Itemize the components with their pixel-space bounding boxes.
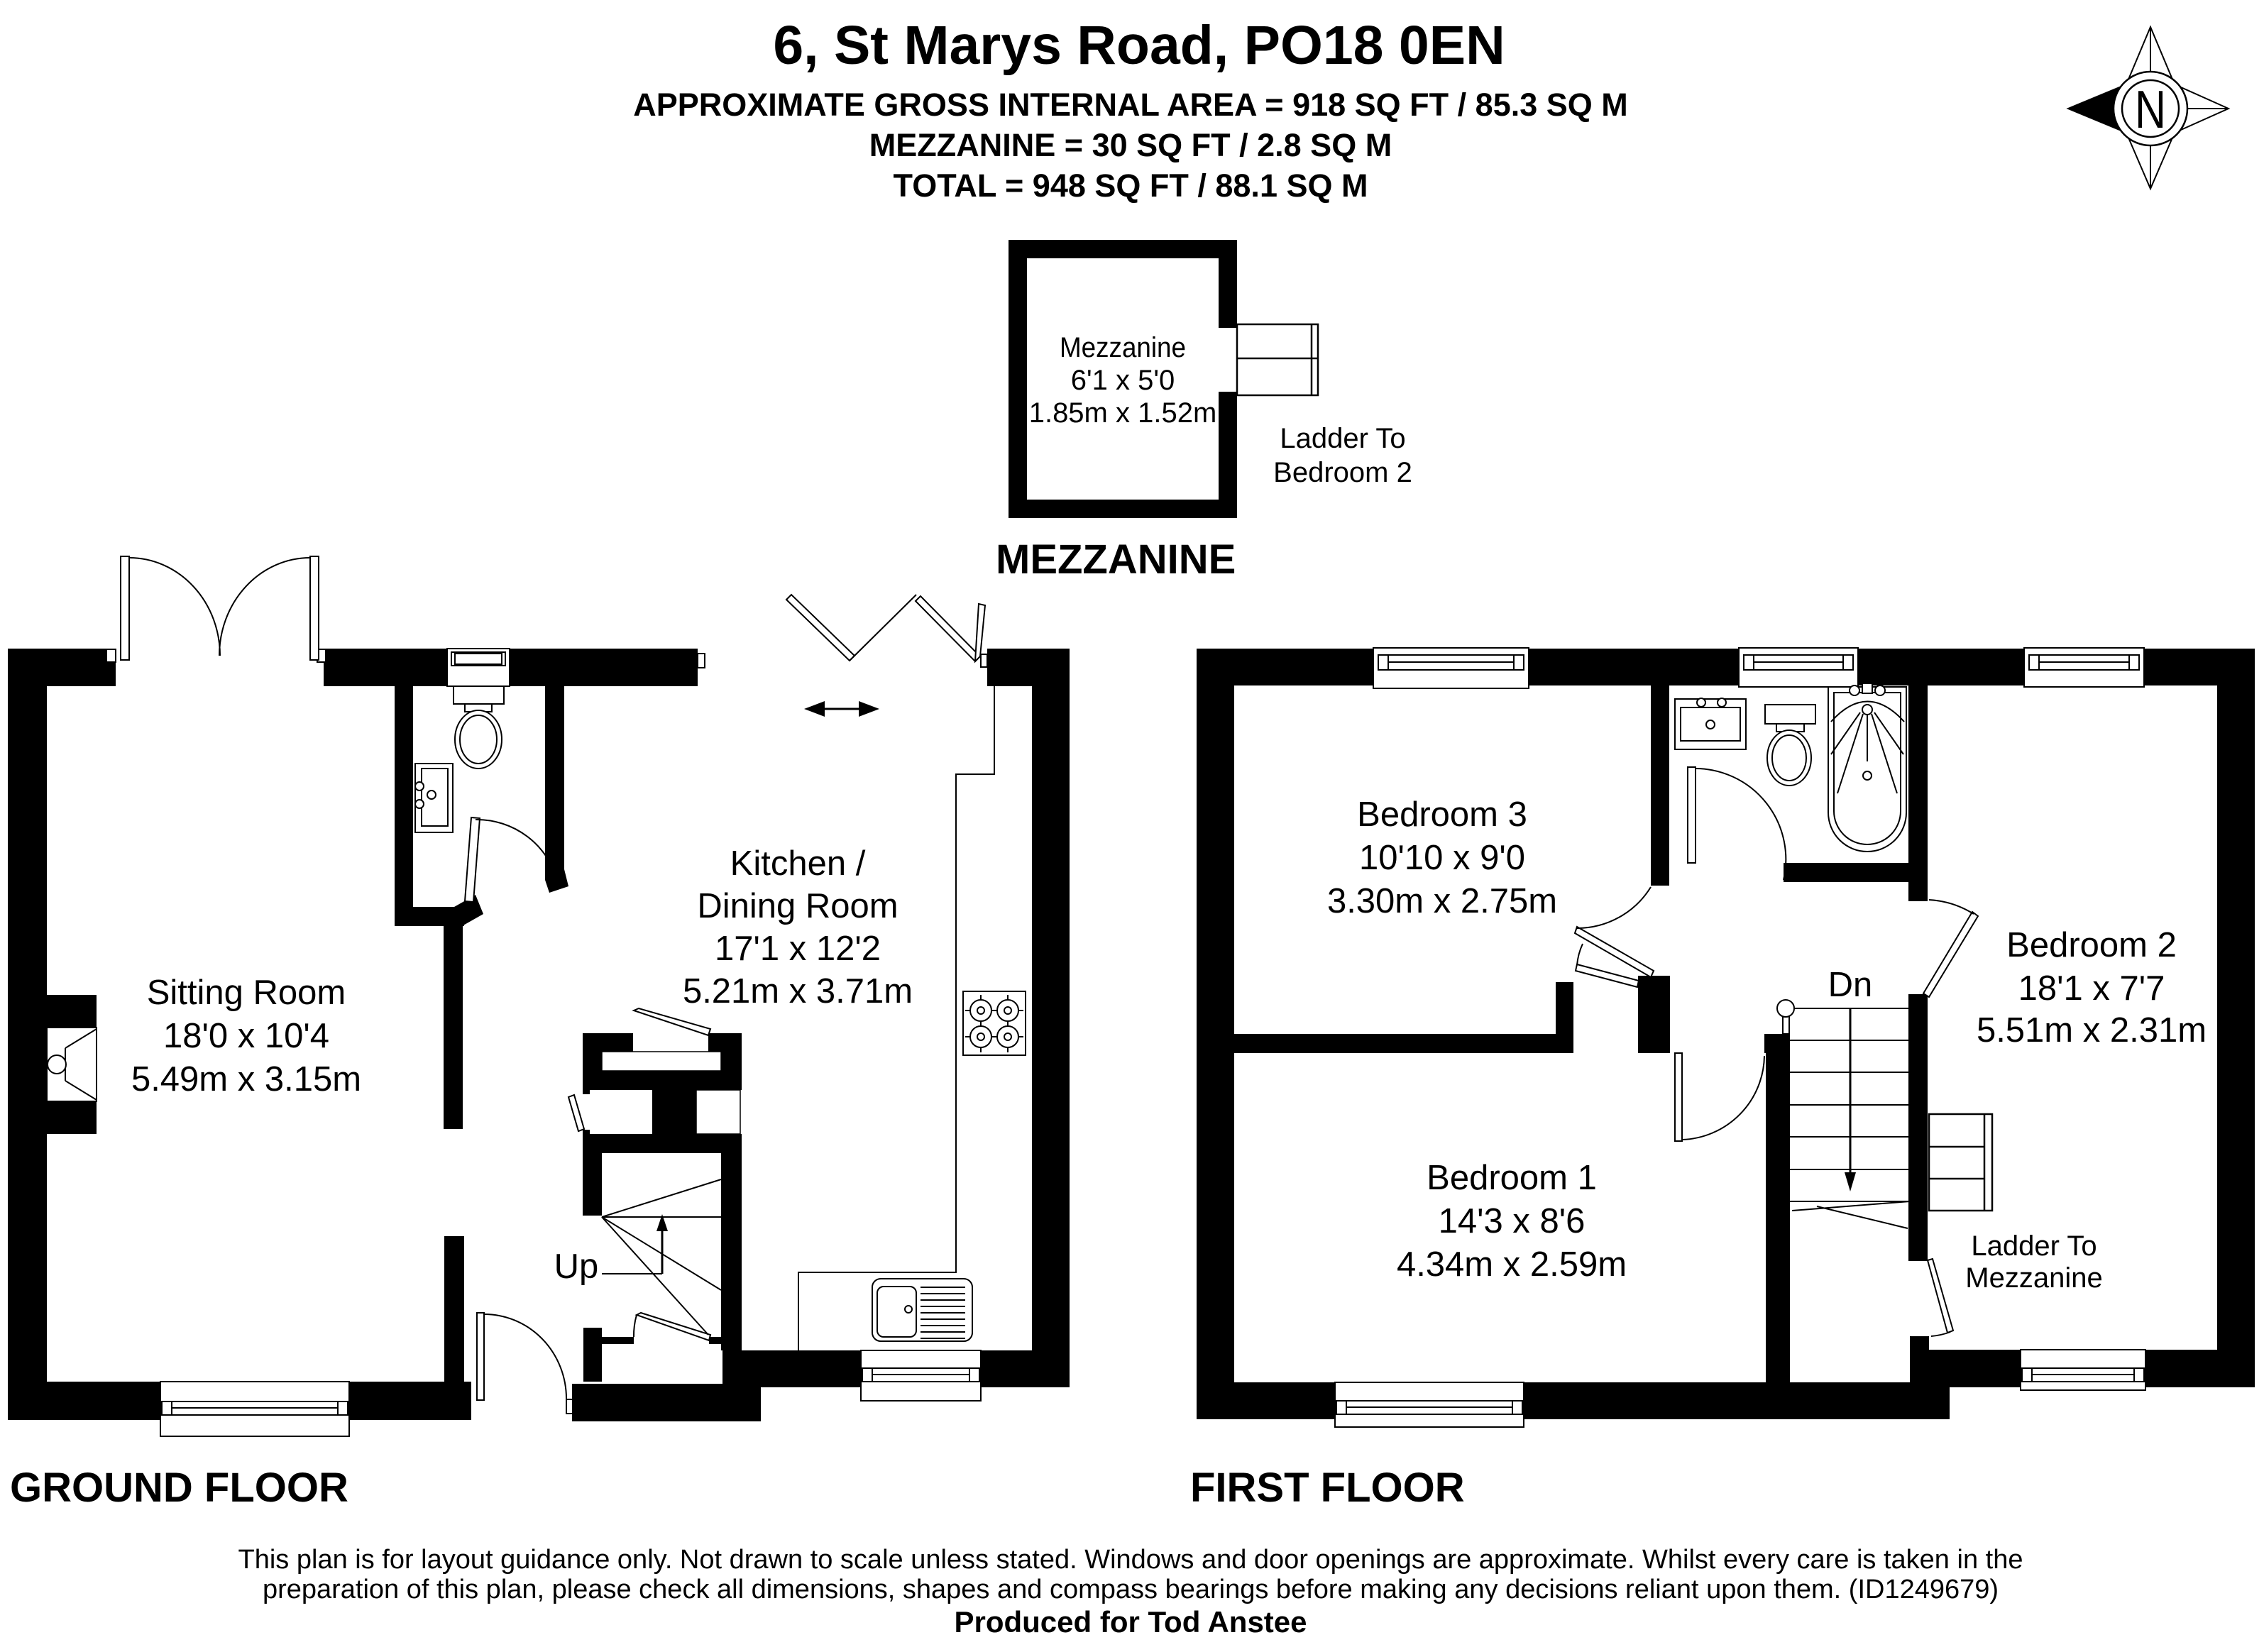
svg-text:Sitting Room: Sitting Room — [147, 974, 346, 1012]
svg-text:18'1 x 7'7: 18'1 x 7'7 — [2018, 969, 2165, 1008]
svg-text:Ladder To: Ladder To — [1280, 423, 1405, 454]
svg-text:MEZZANINE = 30 SQ FT / 2.8 SQ: MEZZANINE = 30 SQ FT / 2.8 SQ M — [869, 127, 1392, 163]
svg-text:3.30m x 2.75m: 3.30m x 2.75m — [1327, 882, 1557, 920]
svg-text:Bedroom 3: Bedroom 3 — [1357, 795, 1527, 834]
svg-text:Kitchen /: Kitchen / — [730, 844, 866, 883]
svg-text:6, St Marys Road, PO18 0EN: 6, St Marys Road, PO18 0EN — [773, 15, 1505, 76]
svg-text:Bedroom 2: Bedroom 2 — [1273, 457, 1412, 488]
svg-text:4.34m x 2.59m: 4.34m x 2.59m — [1397, 1245, 1627, 1284]
svg-text:FIRST FLOOR: FIRST FLOOR — [1190, 1465, 1465, 1511]
svg-text:MEZZANINE: MEZZANINE — [996, 536, 1236, 583]
svg-text:preparation of this plan, plea: preparation of this plan, please check a… — [263, 1575, 1999, 1604]
svg-text:Mezzanine: Mezzanine — [1965, 1262, 2102, 1294]
svg-text:N: N — [2135, 79, 2166, 139]
svg-text:TOTAL = 948 SQ FT / 88.1 SQ M: TOTAL = 948 SQ FT / 88.1 SQ M — [894, 167, 1368, 204]
svg-text:18'0 x 10'4: 18'0 x 10'4 — [163, 1017, 329, 1055]
svg-text:1.85m x 1.52m: 1.85m x 1.52m — [1029, 397, 1217, 429]
svg-text:Dn: Dn — [1828, 966, 1873, 1004]
svg-text:5.51m x 2.31m: 5.51m x 2.31m — [1977, 1011, 2207, 1050]
svg-text:Mezzanine: Mezzanine — [1060, 332, 1186, 363]
svg-text:Ladder To: Ladder To — [1971, 1230, 2097, 1262]
svg-text:6'1 x 5'0: 6'1 x 5'0 — [1071, 365, 1175, 396]
svg-text:14'3 x 8'6: 14'3 x 8'6 — [1439, 1202, 1586, 1240]
svg-text:17'1 x 12'2: 17'1 x 12'2 — [715, 930, 881, 968]
svg-text:Up: Up — [554, 1248, 599, 1286]
svg-text:APPROXIMATE GROSS INTERNAL ARE: APPROXIMATE GROSS INTERNAL AREA = 918 SQ… — [633, 87, 1628, 123]
svg-text:10'10 x 9'0: 10'10 x 9'0 — [1359, 839, 1525, 877]
svg-text:GROUND FLOOR: GROUND FLOOR — [10, 1465, 348, 1511]
svg-text:Bedroom 1: Bedroom 1 — [1427, 1159, 1597, 1197]
svg-text:5.49m x 3.15m: 5.49m x 3.15m — [131, 1060, 361, 1098]
svg-text:Bedroom 2: Bedroom 2 — [2006, 926, 2177, 964]
svg-text:5.21m x 3.71m: 5.21m x 3.71m — [683, 972, 913, 1011]
svg-text:Dining Room: Dining Room — [697, 887, 898, 925]
svg-text:This plan is for layout guidan: This plan is for layout guidance only. N… — [238, 1545, 2023, 1575]
svg-text:Produced for Tod Anstee: Produced for Tod Anstee — [954, 1605, 1307, 1639]
